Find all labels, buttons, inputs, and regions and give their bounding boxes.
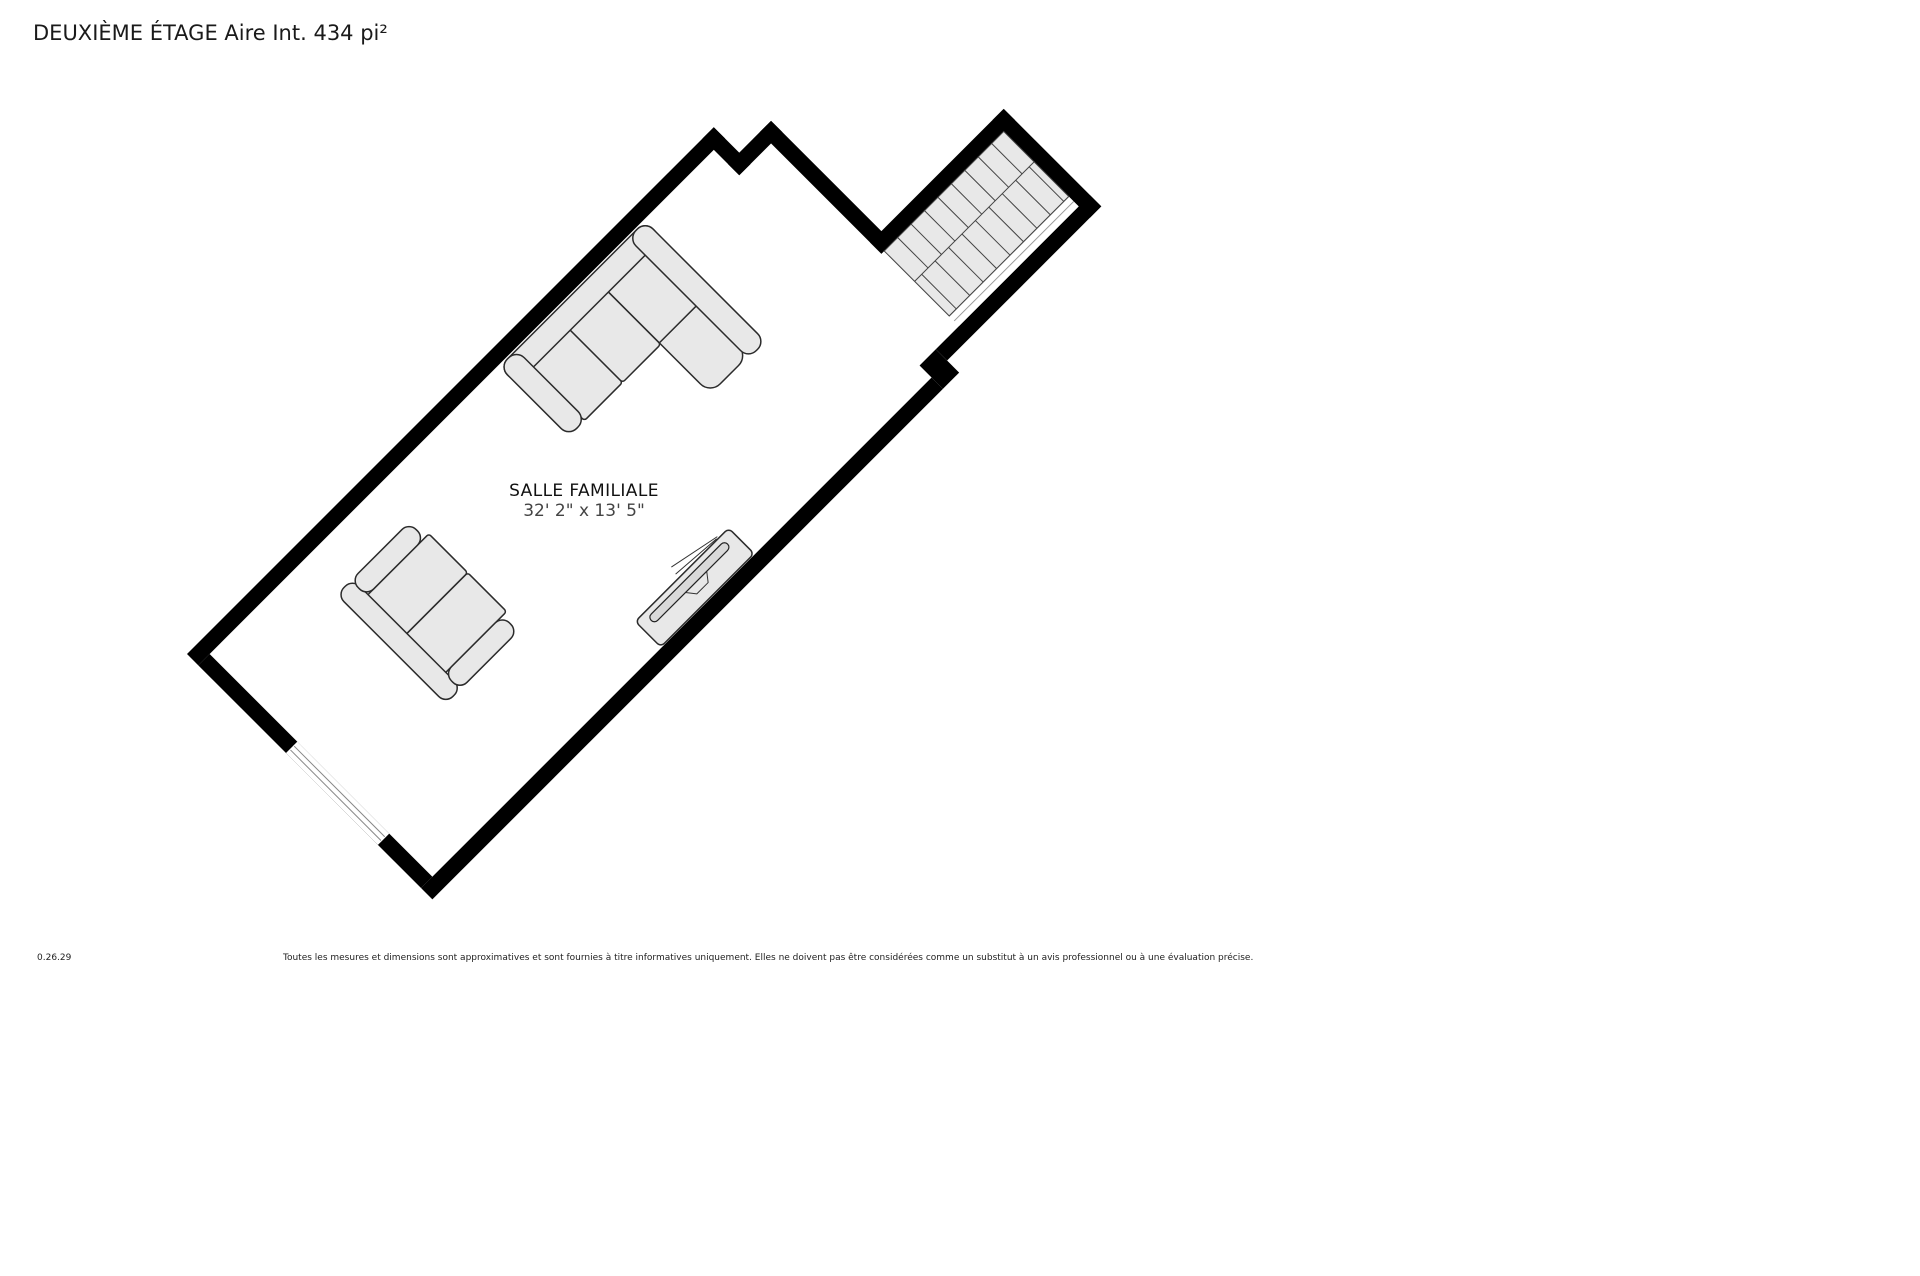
page-title: DEUXIÈME ÉTAGE Aire Int. 434 pi²: [33, 20, 388, 45]
version-number: 0.26.29: [37, 953, 72, 963]
room-dimensions: 32' 2" x 13' 5": [523, 501, 645, 521]
room-label: SALLE FAMILIALE: [509, 481, 659, 501]
disclaimer-text: Toutes les mesures et dimensions sont ap…: [282, 952, 1253, 963]
floor-plan: [187, 0, 1113, 899]
floor-plan-canvas: DEUXIÈME ÉTAGE Aire Int. 434 pi² SALLE F…: [0, 0, 1920, 1276]
